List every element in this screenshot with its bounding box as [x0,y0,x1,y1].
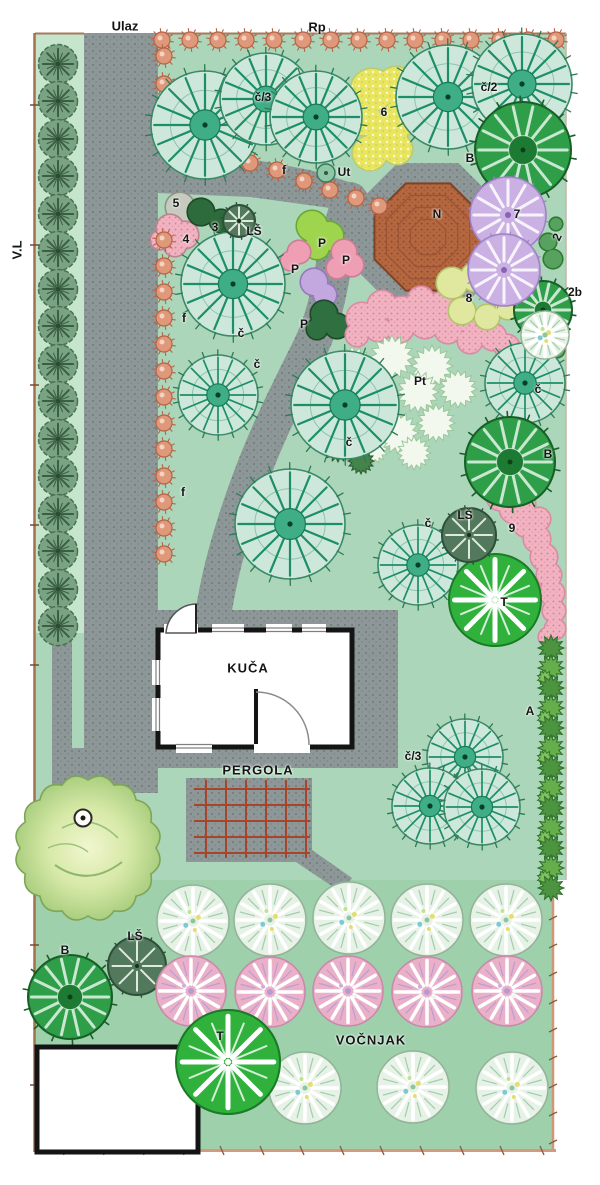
garden-plan: Ulaz Rp V.L KUČA PERGOLA VOČNJAK č/36č/2… [0,0,600,1185]
garden-plan-graphic [0,0,600,1185]
outbuilding-outline [37,1047,198,1152]
